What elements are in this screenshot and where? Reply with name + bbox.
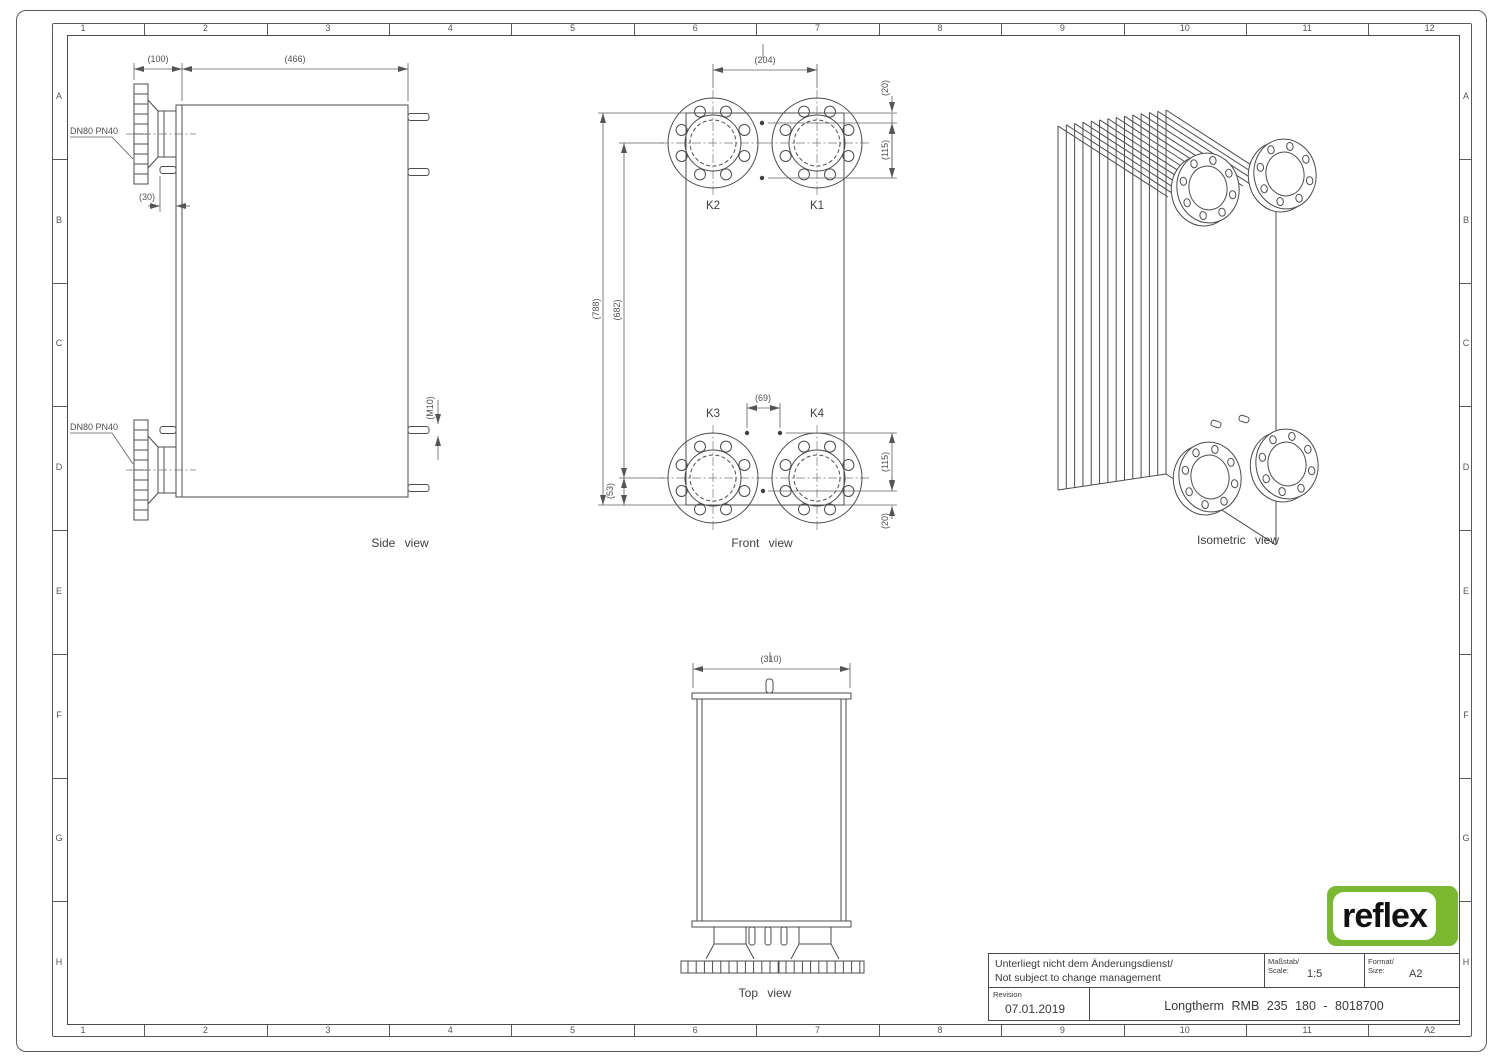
dim-682: (682) bbox=[612, 299, 622, 320]
drawing-area: (100) (466) (30) DN80 PN40 DN80 PN40 (M1… bbox=[0, 0, 1500, 1061]
dim-100: (100) bbox=[147, 54, 168, 64]
reflex-logo-text: reflex bbox=[1342, 899, 1427, 933]
iso-flange bbox=[1244, 424, 1323, 507]
isometric-view-label: Isometric view bbox=[1197, 533, 1279, 547]
port-label-k1: K1 bbox=[810, 200, 824, 212]
flange-k3 bbox=[660, 425, 766, 531]
front-body bbox=[686, 113, 844, 505]
dim-466: (466) bbox=[284, 54, 305, 64]
scale-value: 1:5 bbox=[1307, 968, 1322, 980]
product-designation: Longtherm RMB 235 180 - 8018700 bbox=[1089, 999, 1459, 1013]
port-label-k2: K2 bbox=[706, 200, 720, 212]
scale-label-de: Maßstab/ bbox=[1268, 957, 1299, 966]
change-note-line1: Unterliegt nicht dem Änderungsdienst/ bbox=[995, 958, 1173, 970]
format-label-de: Format/ bbox=[1368, 957, 1394, 966]
port-label-k3: K3 bbox=[706, 408, 720, 420]
format-label-en: Size: bbox=[1368, 966, 1385, 975]
flange-k1 bbox=[764, 90, 870, 196]
isometric-view: Isometric view bbox=[1058, 110, 1324, 547]
stud bbox=[408, 427, 429, 434]
dim-788: (788) bbox=[591, 298, 601, 319]
stud bbox=[1238, 415, 1249, 424]
stud bbox=[160, 427, 176, 434]
iso-flange bbox=[1165, 148, 1244, 231]
side-view: (100) (466) (30) DN80 PN40 DN80 PN40 (M1… bbox=[70, 54, 438, 550]
change-note-line2: Not subject to change management bbox=[995, 972, 1161, 984]
dim-m10: (M10) bbox=[425, 396, 435, 420]
stud bbox=[408, 169, 429, 176]
dim-30: (30) bbox=[139, 192, 155, 202]
nozzle-label-bottom: DN80 PN40 bbox=[70, 422, 118, 432]
side-body bbox=[176, 105, 408, 497]
stud bbox=[766, 679, 773, 693]
dim-204: (204) bbox=[754, 55, 775, 65]
scale-label-en: Scale: bbox=[1268, 966, 1289, 975]
reflex-logo: reflex bbox=[1327, 886, 1458, 946]
title-block: Unterliegt nicht dem Änderungsdienst/ No… bbox=[988, 953, 1460, 1021]
front-view-label: Front view bbox=[731, 536, 793, 550]
reflex-logo-inner: reflex bbox=[1333, 892, 1436, 940]
stud bbox=[408, 114, 429, 121]
stud bbox=[408, 485, 429, 492]
revision-label: Revision bbox=[993, 990, 1022, 999]
port-label-k4: K4 bbox=[810, 408, 825, 420]
nozzle-label-top: DN80 PN40 bbox=[70, 126, 118, 136]
stud bbox=[765, 927, 771, 945]
revision-date: 07.01.2019 bbox=[1005, 1002, 1065, 1016]
dim-115-top: (115) bbox=[880, 140, 890, 160]
plate-pack bbox=[1058, 110, 1276, 490]
flange-k4 bbox=[764, 425, 870, 531]
stud bbox=[781, 927, 787, 945]
top-view-label: Top view bbox=[739, 986, 792, 1000]
stud bbox=[749, 927, 755, 945]
dim-115-bottom: (115) bbox=[880, 452, 890, 472]
side-view-label: Side view bbox=[371, 536, 429, 550]
format-value: A2 bbox=[1409, 968, 1422, 980]
dim-53: (53) bbox=[605, 483, 615, 499]
front-view: K2 K1 K3 K4 (204) (788) (682) (53) bbox=[591, 44, 897, 550]
dim-20-top: (20) bbox=[880, 80, 890, 96]
dim-69: (69) bbox=[755, 393, 771, 403]
flange-hatching bbox=[688, 961, 860, 973]
flange-k2 bbox=[660, 90, 766, 196]
dim-20-bottom: (20) bbox=[880, 513, 890, 529]
stud bbox=[1210, 420, 1221, 429]
iso-flange bbox=[1242, 134, 1321, 217]
dim-310: (310) bbox=[760, 654, 781, 664]
flange-hatching bbox=[134, 94, 148, 510]
top-view: (310) Top view bbox=[681, 652, 864, 1000]
iso-flange bbox=[1167, 437, 1246, 520]
stud bbox=[160, 167, 176, 174]
drawing-sheet: 1234567891011121234567891011A2ABCDEFGHAB… bbox=[0, 0, 1500, 1061]
